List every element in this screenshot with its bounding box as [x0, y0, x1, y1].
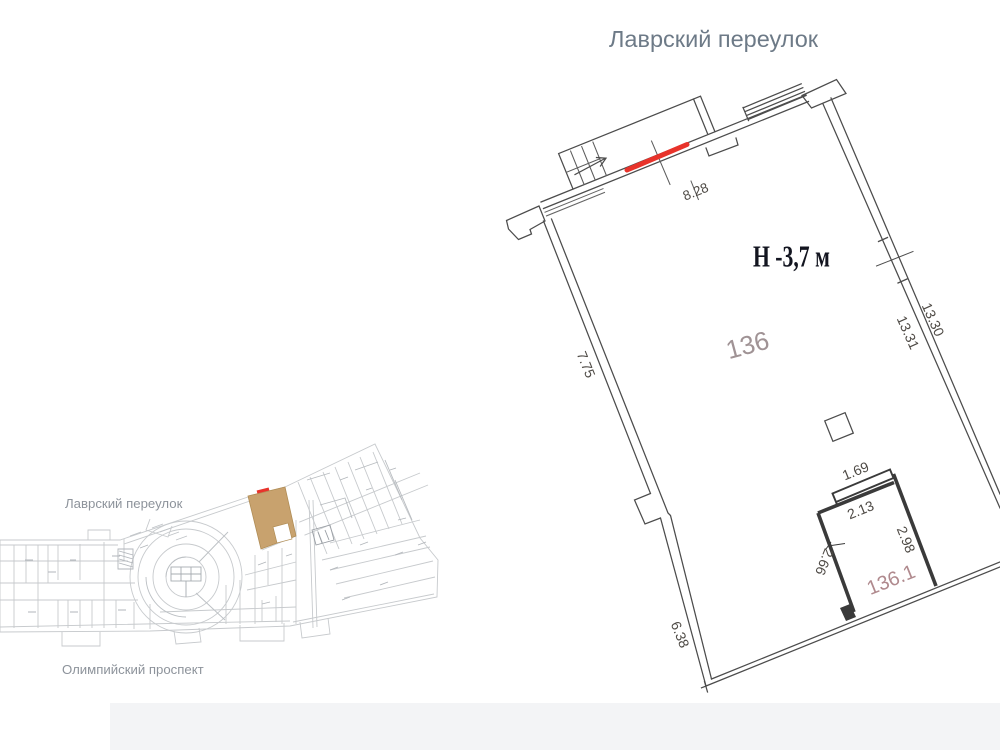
svg-text:136.1: 136.1 [864, 561, 919, 600]
svg-text:Олимпийский проспект: Олимпийский проспект [62, 662, 204, 677]
svg-text:136: 136 [723, 325, 773, 365]
svg-text:8.28: 8.28 [681, 180, 711, 204]
svg-text:2.66: 2.66 [812, 546, 837, 577]
svg-text:Лаврский переулок: Лаврский переулок [609, 26, 819, 52]
svg-text:13.31: 13.31 [894, 313, 923, 352]
svg-text:Н -3,7 м: Н -3,7 м [753, 239, 830, 274]
svg-text:Лаврский переулок: Лаврский переулок [65, 496, 183, 511]
